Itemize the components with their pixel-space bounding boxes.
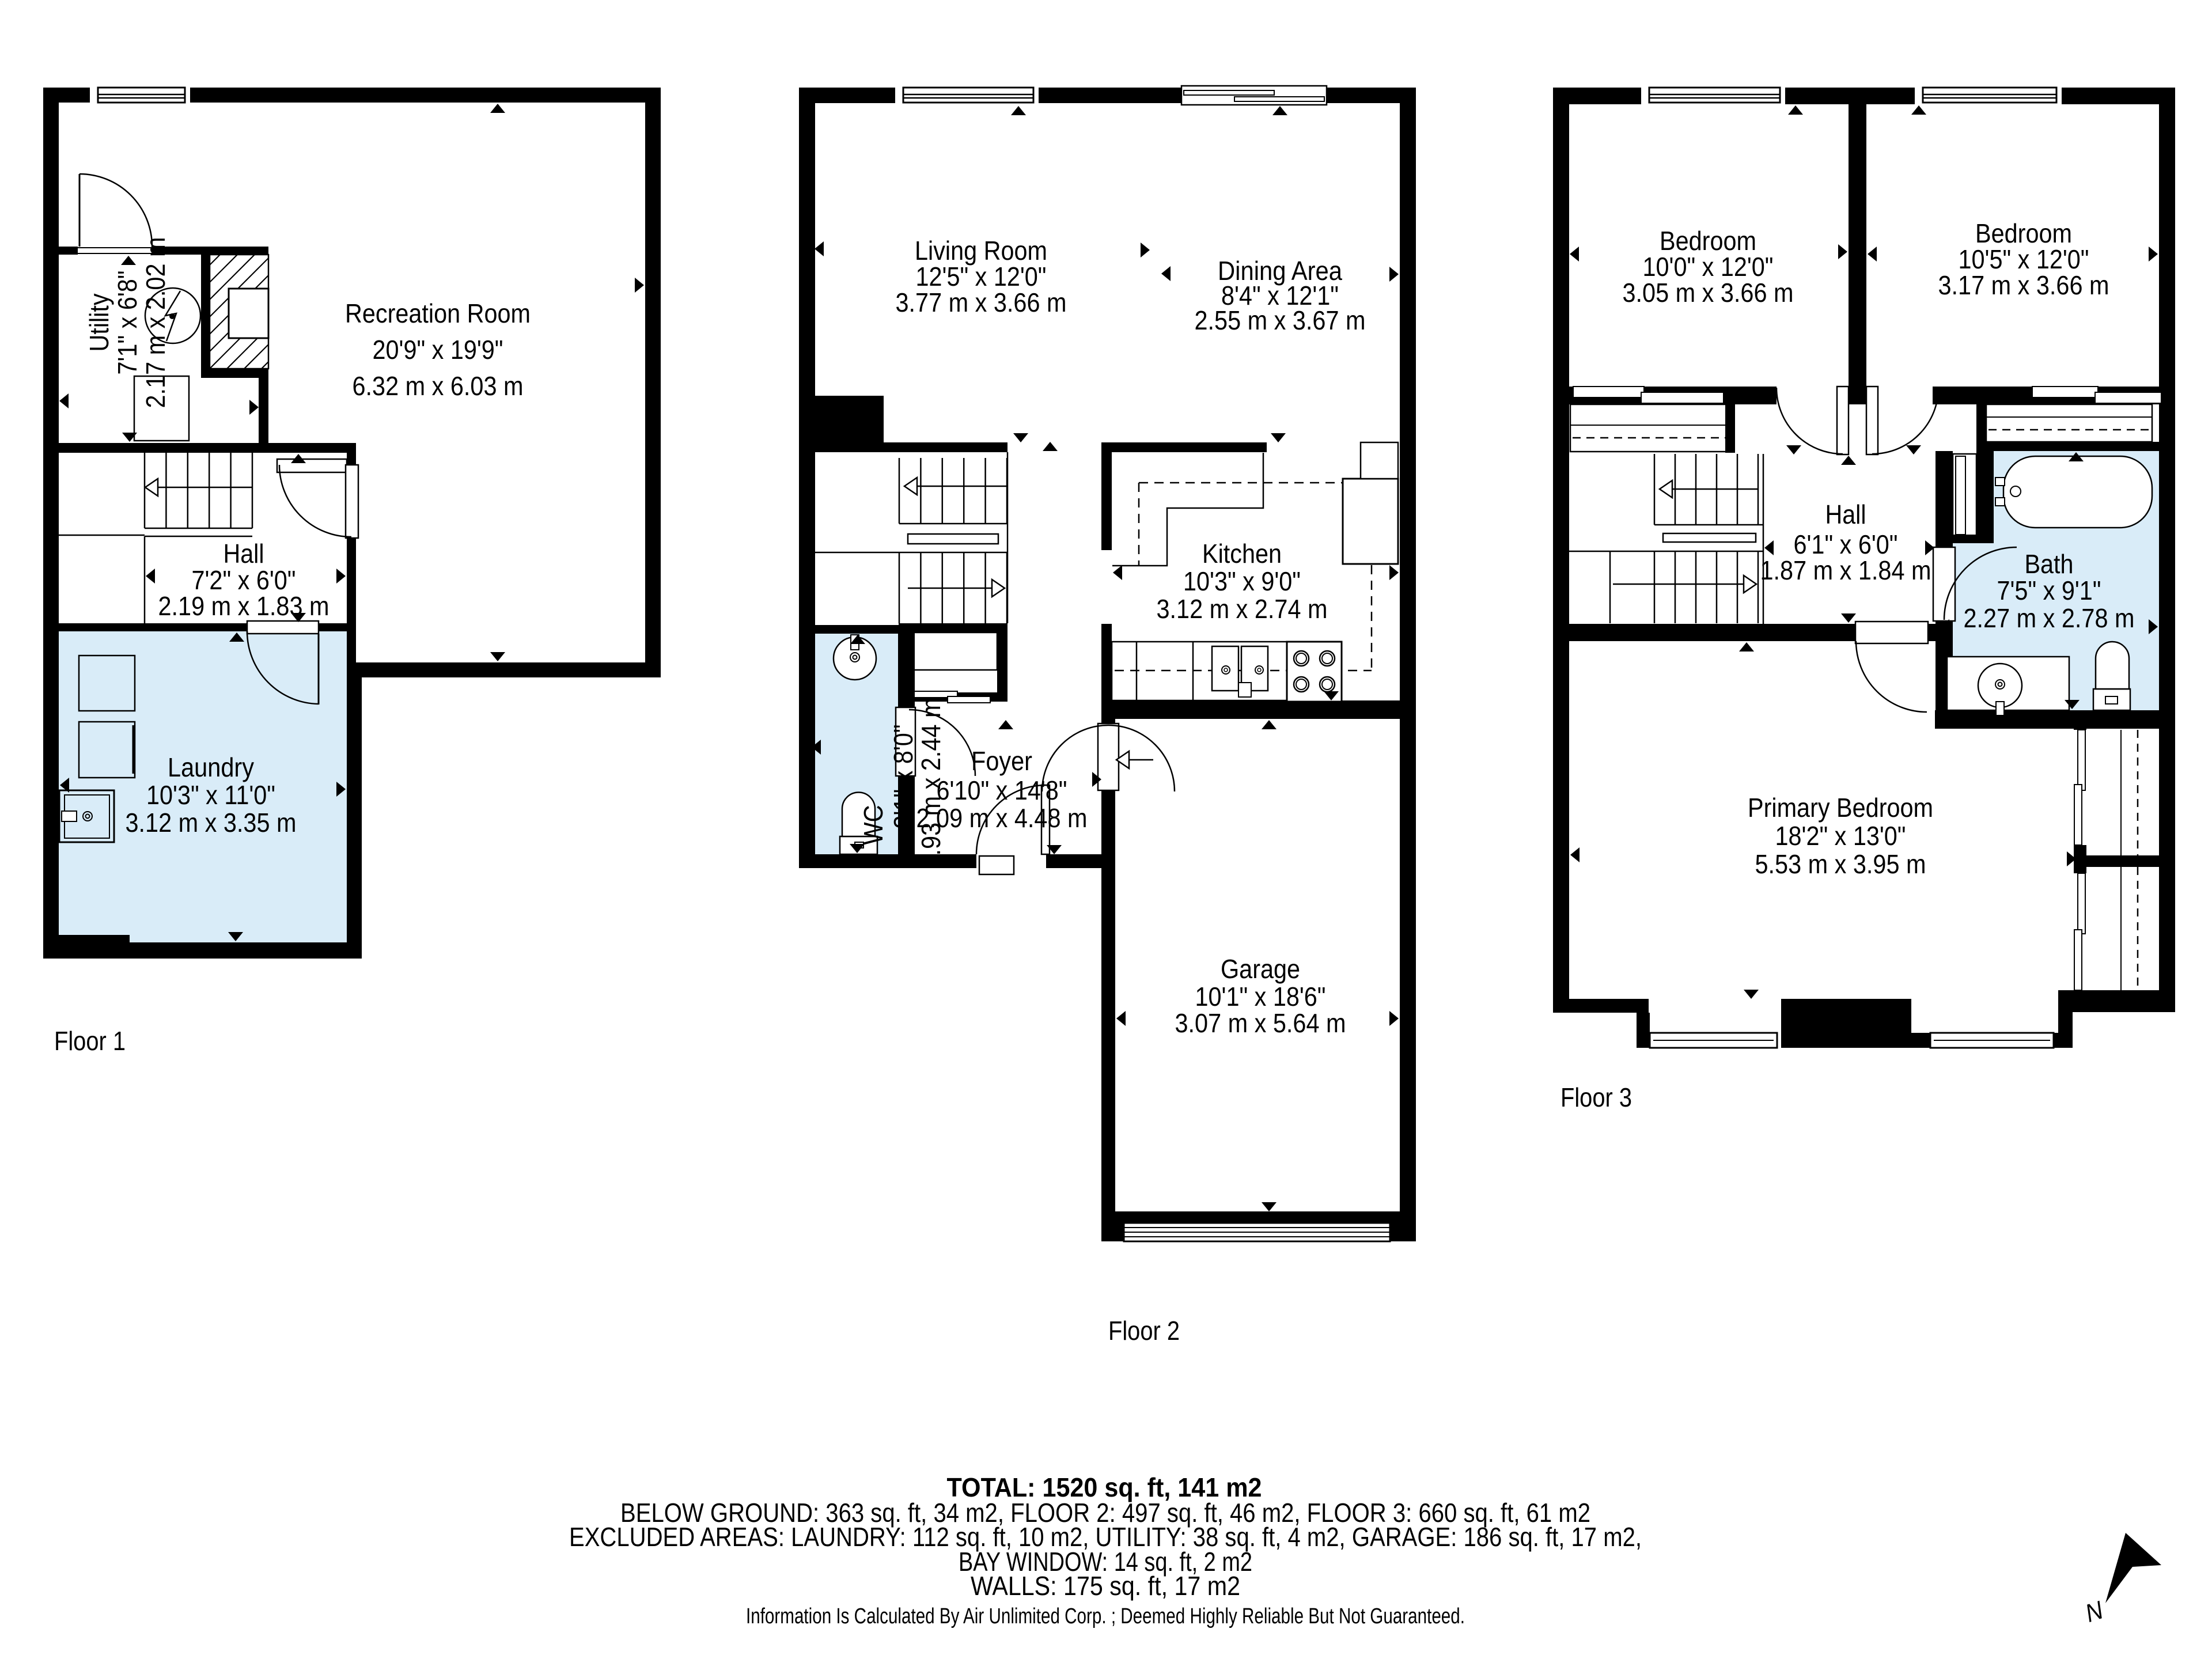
svg-text:20'9" x 19'9": 20'9" x 19'9" <box>373 335 503 365</box>
svg-text:6'10" x 14'8": 6'10" x 14'8" <box>937 775 1067 805</box>
svg-text:Foyer: Foyer <box>971 746 1032 776</box>
svg-text:3.77 m x 3.66 m: 3.77 m x 3.66 m <box>896 287 1067 317</box>
svg-text:Kitchen: Kitchen <box>1202 539 1282 569</box>
svg-text:2.55 m x 3.67 m: 2.55 m x 3.67 m <box>1195 305 1366 335</box>
svg-text:Laundry: Laundry <box>168 752 254 782</box>
svg-text:3'1" x 8'0": 3'1" x 8'0" <box>888 725 918 829</box>
svg-text:18'2" x 13'0": 18'2" x 13'0" <box>1775 821 1906 851</box>
svg-text:Bath: Bath <box>2025 549 2074 579</box>
svg-text:3.12 m x 3.35 m: 3.12 m x 3.35 m <box>126 808 297 838</box>
svg-text:WALLS: 175 sq. ft, 17 m2: WALLS: 175 sq. ft, 17 m2 <box>971 1571 1240 1601</box>
svg-text:10'1" x 18'6": 10'1" x 18'6" <box>1195 982 1326 1012</box>
svg-text:1.87 m x 1.84 m: 1.87 m x 1.84 m <box>1760 555 1931 585</box>
svg-text:7'5" x 9'1": 7'5" x 9'1" <box>1997 575 2101 605</box>
svg-text:Utility: Utility <box>84 294 114 352</box>
svg-text:6.32 m x 6.03 m: 6.32 m x 6.03 m <box>353 371 524 401</box>
svg-text:10'3" x 11'0": 10'3" x 11'0" <box>146 780 275 810</box>
svg-text:3.12 m x 2.74 m: 3.12 m x 2.74 m <box>1157 594 1328 624</box>
svg-text:2.17 m x 2.02 m: 2.17 m x 2.02 m <box>141 237 171 408</box>
svg-text:Floor 2: Floor 2 <box>1108 1316 1180 1346</box>
svg-text:Floor 3: Floor 3 <box>1560 1082 1632 1112</box>
svg-text:2.19 m x 1.83 m: 2.19 m x 1.83 m <box>158 591 329 621</box>
svg-text:Garage: Garage <box>1221 954 1300 984</box>
svg-text:7'1" x 6'8": 7'1" x 6'8" <box>112 271 142 375</box>
svg-text:3.17 m x 3.66 m: 3.17 m x 3.66 m <box>1938 270 2109 300</box>
svg-text:0.93 m x 2.44 m: 0.93 m x 2.44 m <box>916 698 946 869</box>
svg-text:Recreation Room: Recreation Room <box>345 298 531 328</box>
svg-text:Floor 1: Floor 1 <box>54 1026 126 1056</box>
svg-text:Primary Bedroom: Primary Bedroom <box>1748 793 1933 823</box>
svg-text:Hall: Hall <box>1825 499 1866 529</box>
svg-text:2.27 m x 2.78 m: 2.27 m x 2.78 m <box>1964 603 2135 633</box>
svg-text:Hall: Hall <box>224 539 264 569</box>
svg-text:Information Is Calculated By A: Information Is Calculated By Air Unlimit… <box>746 1604 1465 1628</box>
svg-text:3.05 m x 3.66 m: 3.05 m x 3.66 m <box>1623 278 1794 308</box>
svg-text:3.07 m x 5.64 m: 3.07 m x 5.64 m <box>1175 1008 1346 1038</box>
svg-text:WC: WC <box>858 805 888 845</box>
svg-text:10'3" x 9'0": 10'3" x 9'0" <box>1183 566 1301 596</box>
svg-text:5.53 m x 3.95 m: 5.53 m x 3.95 m <box>1755 849 1926 879</box>
